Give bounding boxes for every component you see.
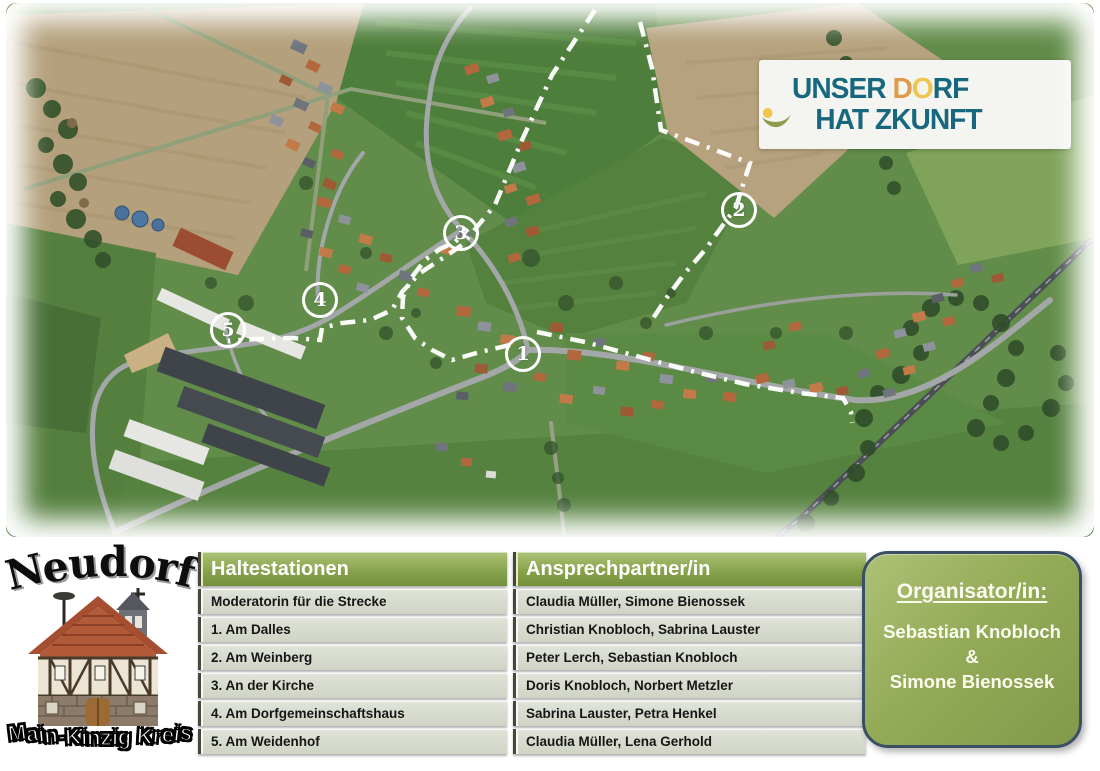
village-house-image: [22, 580, 174, 730]
table-row: 4. Am DorfgemeinschaftshausSabrina Laust…: [198, 701, 866, 726]
station-cell: Moderatorin für die Strecke: [198, 589, 507, 614]
organizer-name-1: Sebastian Knobloch: [865, 620, 1079, 645]
stations-table: Haltestationen Ansprechpartner/in Modera…: [192, 549, 872, 757]
station-cell: 3. An der Kirche: [198, 673, 507, 698]
station-cell: 4. Am Dorfgemeinschaftshaus: [198, 701, 507, 726]
organizer-name-2: Simone Bienossek: [865, 670, 1079, 695]
map-marker-5: 5: [210, 312, 246, 348]
contact-cell: Claudia Müller, Lena Gerhold: [513, 729, 866, 754]
station-cell: 2. Am Weinberg: [198, 645, 507, 670]
smile-sun-icon: [760, 107, 793, 133]
contact-cell: Sabrina Lauster, Petra Henkel: [513, 701, 866, 726]
station-cell: 1. Am Dalles: [198, 617, 507, 642]
map-marker-4: 4: [302, 282, 338, 318]
organizer-title: Organisator/in:: [865, 580, 1079, 604]
logo-unser-dorf-hat-zukunft: UNSER DORF HAT ZKUNFT: [759, 60, 1071, 149]
table-header-row: Haltestationen Ansprechpartner/in: [198, 552, 866, 586]
poster-page: 12345 UNSER DORF HAT ZKUNFT Neudorf: [0, 0, 1100, 771]
table-row: 3. An der KircheDoris Knobloch, Norbert …: [198, 673, 866, 698]
table-row: 5. Am WeidenhofClaudia Müller, Lena Gerh…: [198, 729, 866, 754]
aerial-map: 12345 UNSER DORF HAT ZKUNFT: [6, 3, 1094, 537]
contact-cell: Christian Knobloch, Sabrina Lauster: [513, 617, 866, 642]
table-row: 2. Am WeinbergPeter Lerch, Sebastian Kno…: [198, 645, 866, 670]
table-row: Moderatorin für die StreckeClaudia Mülle…: [198, 589, 866, 614]
contact-cell: Peter Lerch, Sebastian Knobloch: [513, 645, 866, 670]
column-header-haltestationen: Haltestationen: [198, 552, 507, 586]
logo-line-1: UNSER DORF: [759, 74, 1062, 104]
table-row: 1. Am DallesChristian Knobloch, Sabrina …: [198, 617, 866, 642]
map-marker-2: 2: [721, 192, 757, 228]
organizer-separator: &: [865, 645, 1079, 670]
contact-cell: Doris Knobloch, Norbert Metzler: [513, 673, 866, 698]
column-header-ansprechpartner: Ansprechpartner/in: [513, 552, 866, 586]
logo-letter-o: O: [912, 73, 933, 105]
neudorf-branding: Neudorf Main-Kinzig Kreis: [0, 542, 200, 771]
map-marker-1: 1: [505, 336, 541, 372]
district-name: Main-Kinzig Kreis: [0, 720, 200, 746]
organizer-names: Sebastian Knobloch & Simone Bienossek: [865, 620, 1079, 695]
organizer-box: Organisator/in: Sebastian Knobloch & Sim…: [862, 551, 1082, 748]
map-marker-3: 3: [443, 215, 479, 251]
logo-letter-d: D: [892, 73, 911, 105]
logo-line-2: HAT ZKUNFT: [759, 105, 1062, 135]
contact-cell: Claudia Müller, Simone Bienossek: [513, 589, 866, 614]
station-cell: 5. Am Weidenhof: [198, 729, 507, 754]
